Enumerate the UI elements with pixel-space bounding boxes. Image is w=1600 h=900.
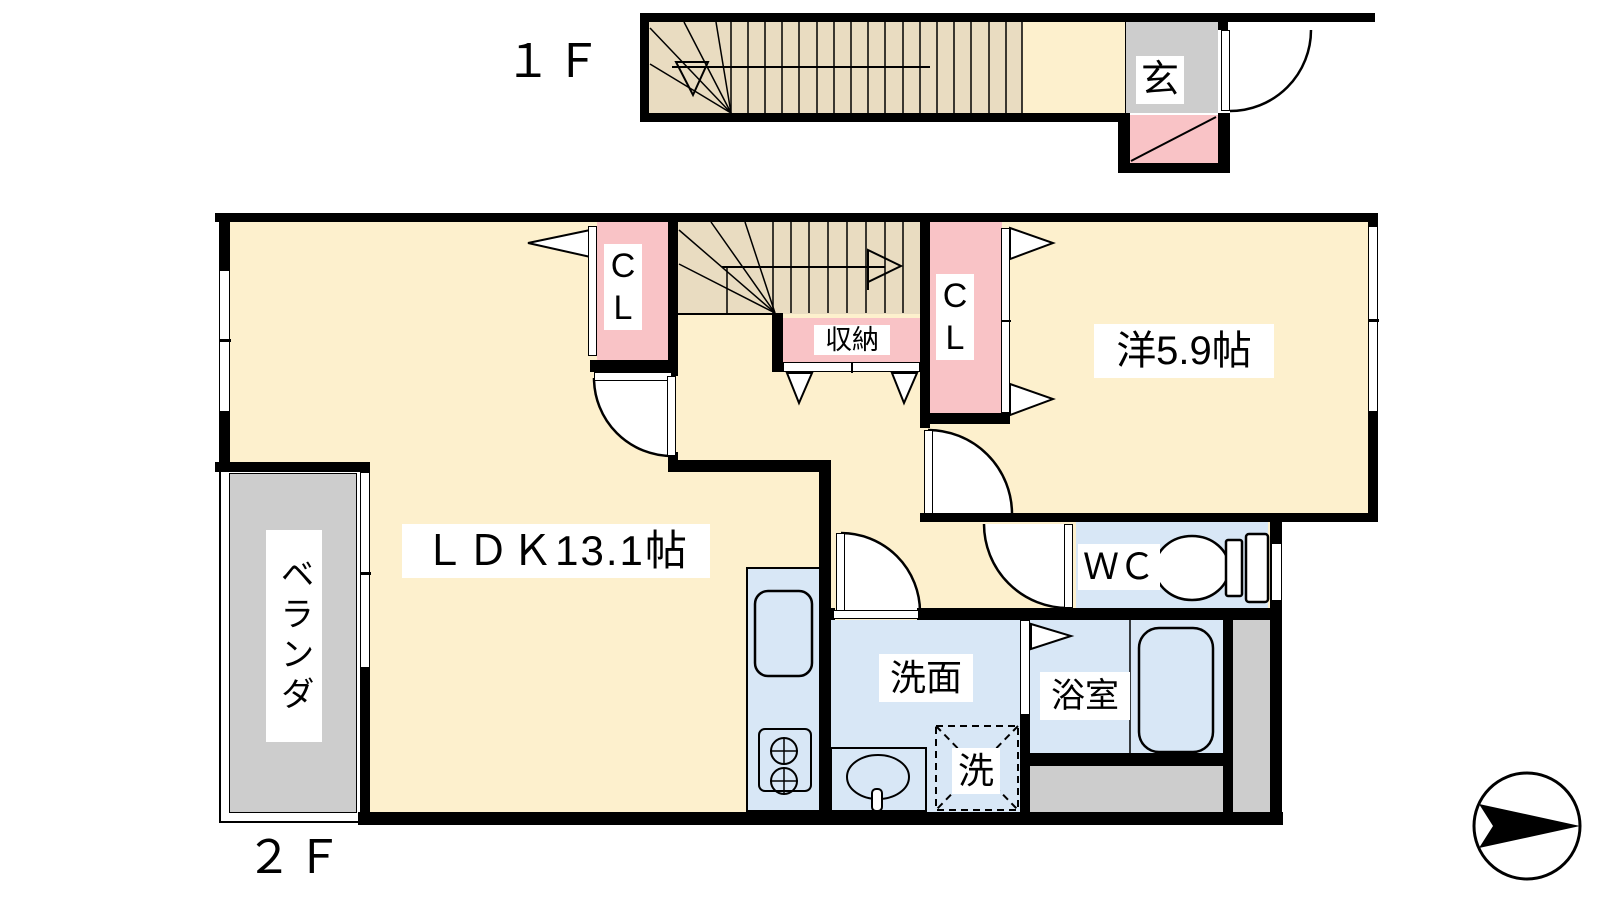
- bedroom-door-leaf: [924, 430, 933, 514]
- f2-wall-left-lower: [219, 412, 230, 464]
- bedroom-window-right: [1368, 226, 1378, 412]
- washroom-door-leaf: [833, 610, 919, 619]
- floor2-title: ２Ｆ: [246, 831, 346, 883]
- hall-closet-right-wall: [920, 222, 930, 428]
- stove-icon: [759, 729, 811, 795]
- closet-left-label-c: C: [611, 245, 636, 288]
- storage-triangle-left: [787, 373, 812, 403]
- f1-wall-bottom: [640, 113, 1130, 122]
- f2-wall-left-upper: [219, 213, 230, 270]
- kitchen-sink-icon: [755, 591, 812, 676]
- veranda-wall-top: [215, 462, 370, 472]
- ldk-label: ＬＤＫ13.1帖: [402, 524, 710, 578]
- veranda-ldk-wall: [360, 668, 370, 817]
- closet-right-label-l: L: [946, 317, 965, 360]
- washroom-door-leaf-open: [836, 533, 845, 613]
- bathroom-wall-right: [1223, 618, 1233, 813]
- ldk-window-left: [219, 270, 230, 412]
- kitchen-hall-wall: [668, 460, 831, 472]
- closet-left-wall-bottom: [590, 360, 678, 372]
- floor-plan: １Ｆ ２Ｆ 玄 ＬＤＫ13.1帖 洋5.9帖 C L C L 収納 ＷＣ 洗面 …: [0, 0, 1600, 900]
- f1-wall-left: [640, 13, 649, 122]
- toilet-icon: [1155, 534, 1268, 602]
- closet-left-label-l: L: [614, 287, 633, 330]
- bedroom-wall-bottom: [920, 513, 1378, 522]
- veranda-label: ベランダ: [266, 530, 322, 742]
- closet-right-triangle-top: [1010, 228, 1053, 259]
- f1-step-edge: [1131, 117, 1216, 161]
- f2-wall-bottom: [358, 812, 1283, 825]
- wc-door-leaf: [1064, 524, 1073, 608]
- wc-window: [1271, 543, 1282, 601]
- floor1-title: １Ｆ: [505, 36, 605, 86]
- closet-right-door: [1001, 228, 1010, 413]
- closet-left-door: [588, 226, 597, 356]
- entrance-label: 玄: [1136, 56, 1184, 104]
- f1-door-jamb: [1218, 22, 1228, 30]
- ldk-door-leaf: [667, 376, 676, 456]
- closet-left-triangle: [528, 229, 595, 258]
- closet-right-triangle-bottom: [1010, 384, 1053, 415]
- compass-icon: [1474, 773, 1580, 879]
- ldk-door-leaf-open: [594, 372, 672, 381]
- veranda-sliding-window: [360, 472, 370, 668]
- closet-left-label: C L: [604, 244, 642, 330]
- wc-label: ＷＣ: [1078, 544, 1160, 590]
- bathroom-label: 浴室: [1040, 672, 1130, 720]
- bedroom-label: 洋5.9帖: [1094, 324, 1274, 378]
- bathroom-door: [1020, 620, 1030, 715]
- f1-wall-top: [640, 13, 1375, 22]
- bathroom-wall-bottom: [1028, 753, 1223, 766]
- f1-entry-door-leaf: [1221, 30, 1230, 111]
- bathtub-icon: [1139, 628, 1213, 752]
- plan-line-art: [0, 0, 1600, 900]
- storage-triangle-right: [892, 373, 917, 403]
- f1-step-wall-bottom: [1118, 163, 1230, 173]
- f2-wall-top: [215, 213, 1378, 222]
- storage-door: [783, 362, 920, 372]
- storage-label: 収納: [814, 325, 890, 355]
- closet-right-label: C L: [936, 274, 974, 360]
- bathroom-door-triangle: [1031, 624, 1071, 649]
- kitchen-washroom-wall: [819, 460, 831, 812]
- washroom-label: 洗面: [879, 654, 973, 702]
- laundry-label: 洗: [952, 748, 1000, 794]
- washbasin-icon: [831, 748, 926, 811]
- storage-wall-left: [772, 315, 783, 372]
- ldk-hall-wall: [668, 213, 678, 376]
- closet-right-wall-bottom: [920, 413, 1010, 424]
- closet-right-label-c: C: [943, 275, 968, 318]
